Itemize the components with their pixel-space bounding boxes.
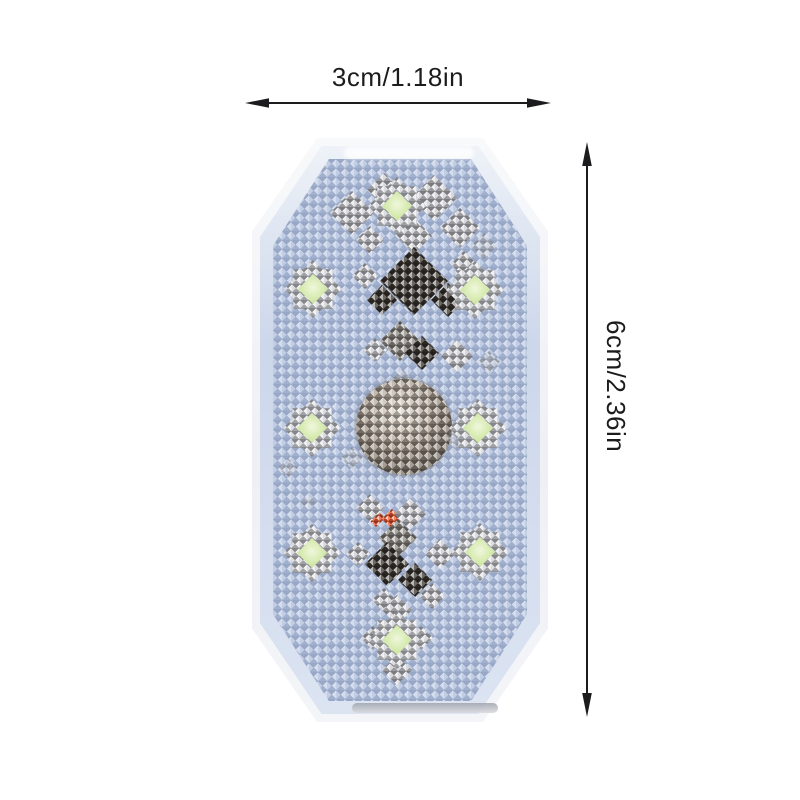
width-dimension-label: 3cm/1.18in [280,62,516,93]
led-green-mid-right [449,399,507,457]
led-light-device [252,138,548,722]
led-green-lower-left [283,524,341,582]
led-green-upper-right [446,261,504,319]
led-green-mid-left [283,399,341,457]
led-green-upper-left [284,260,342,318]
width-dimension-arrow [245,96,551,110]
height-dimension-label: 6cm/2.36in [600,320,631,452]
device-bottom-seam [352,703,498,713]
center-crystal-dome [356,379,452,475]
led-green-lower-right [451,523,509,581]
housing-gloss-highlight [344,147,474,159]
product-photo: 3cm/1.18in 6cm/2.36in [0,0,800,800]
height-dimension-arrow [580,142,594,717]
led-green-bottom-center [368,611,426,669]
led-green-top-center [368,177,426,235]
